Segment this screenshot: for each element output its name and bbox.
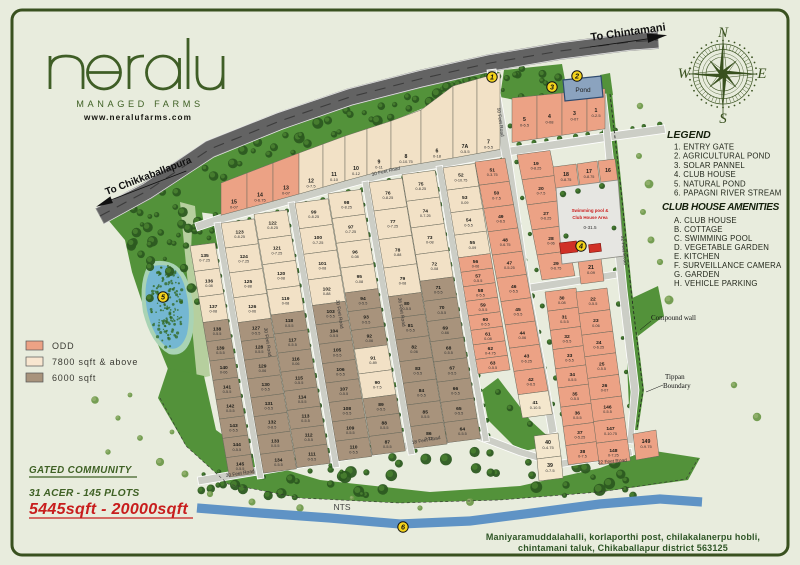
svg-text:0-5.5: 0-5.5 [421, 415, 430, 419]
svg-text:0-07: 0-07 [601, 389, 609, 393]
svg-text:0-09: 0-09 [587, 270, 596, 275]
svg-text:5445sqft - 20000sqft: 5445sqft - 20000sqft [29, 501, 188, 518]
svg-text:0-18: 0-18 [433, 154, 442, 159]
svg-text:0-5.5: 0-5.5 [359, 302, 368, 306]
svg-text:0-06: 0-06 [365, 339, 373, 343]
svg-text:0-5.5: 0-5.5 [288, 343, 297, 347]
svg-text:0-06: 0-06 [547, 242, 555, 246]
svg-text:16: 16 [605, 168, 611, 174]
svg-text:0-8.25: 0-8.25 [234, 235, 245, 239]
svg-text:F. SURVEILLANCE CAMERA: F. SURVEILLANCE CAMERA [674, 261, 782, 270]
svg-text:0-4.75: 0-4.75 [485, 352, 496, 356]
svg-text:G. GARDEN: G. GARDEN [674, 270, 720, 279]
svg-text:0-10.75: 0-10.75 [604, 432, 617, 436]
svg-text:0-08: 0-08 [426, 241, 434, 245]
svg-text:0-89: 0-89 [369, 361, 377, 365]
svg-text:0-5.5: 0-5.5 [343, 412, 352, 416]
svg-text:0-7.5: 0-7.5 [306, 184, 316, 189]
svg-text:4. CLUB HOUSE: 4. CLUB HOUSE [674, 170, 736, 179]
svg-text:0-5.5: 0-5.5 [223, 390, 232, 394]
svg-text:0-6.75: 0-6.75 [500, 243, 511, 247]
svg-text:0-8.25: 0-8.25 [341, 205, 352, 209]
svg-text:0-88: 0-88 [394, 253, 402, 257]
svg-text:0-5.5: 0-5.5 [448, 371, 457, 375]
svg-text:7800 sqft & above: 7800 sqft & above [52, 357, 138, 367]
svg-text:0-5.5: 0-5.5 [380, 426, 389, 430]
svg-text:0-4.75: 0-4.75 [542, 445, 554, 450]
svg-text:0-5.5: 0-5.5 [339, 392, 348, 396]
svg-text:0-6.25: 0-6.25 [521, 359, 532, 363]
svg-text:0-06: 0-06 [410, 350, 418, 354]
svg-text:A. CLUB HOUSE: A. CLUB HOUSE [674, 216, 737, 225]
svg-text:0-5.5: 0-5.5 [229, 429, 238, 433]
svg-text:0-08: 0-08 [484, 337, 492, 341]
svg-text:0-5.5: 0-5.5 [301, 419, 310, 423]
svg-text:0-5.5: 0-5.5 [488, 366, 497, 370]
svg-text:0-9.75: 0-9.75 [640, 444, 652, 449]
svg-text:Club House Area: Club House Area [572, 215, 608, 220]
svg-text:0-5.5: 0-5.5 [560, 320, 569, 324]
svg-text:Tippan: Tippan [665, 373, 685, 381]
svg-text:chintamani taluk, Chikaballapu: chintamani taluk, Chikaballapur district… [518, 543, 728, 553]
svg-text:0-08: 0-08 [205, 284, 213, 288]
svg-text:0-5.5: 0-5.5 [437, 311, 446, 315]
svg-text:E: E [756, 66, 766, 82]
svg-text:H. VEHICLE PARKING: H. VEHICLE PARKING [674, 279, 758, 288]
svg-text:N: N [717, 25, 729, 41]
svg-text:0-5.5: 0-5.5 [509, 289, 518, 293]
svg-text:0-07: 0-07 [282, 191, 291, 196]
svg-text:0-6.5: 0-6.5 [527, 383, 536, 387]
svg-text:0-08: 0-08 [545, 119, 554, 124]
svg-text:0-5.5: 0-5.5 [406, 328, 415, 332]
svg-text:0-5.5: 0-5.5 [377, 408, 386, 412]
svg-text:0-7.25: 0-7.25 [238, 260, 249, 264]
svg-text:6000 sqft: 6000 sqft [52, 373, 96, 383]
svg-text:0-5.5: 0-5.5 [295, 381, 304, 385]
svg-text:0-7.25: 0-7.25 [199, 259, 210, 263]
svg-text:0-5.5: 0-5.5 [308, 457, 317, 461]
svg-text:0-7.25: 0-7.25 [387, 225, 398, 229]
svg-text:5. NATURAL POND: 5. NATURAL POND [674, 179, 746, 188]
svg-text:0-5.5: 0-5.5 [484, 145, 494, 150]
svg-text:0-5.5: 0-5.5 [413, 372, 422, 376]
svg-text:0-5.5: 0-5.5 [568, 378, 577, 382]
svg-text:2: 2 [574, 72, 579, 81]
svg-text:0-7.5: 0-7.5 [373, 386, 382, 390]
svg-text:0-5.5: 0-5.5 [330, 334, 339, 338]
svg-text:0-8.5: 0-8.5 [268, 425, 277, 429]
svg-text:0-5.5: 0-5.5 [298, 400, 307, 404]
svg-text:MANAGED FARMS: MANAGED FARMS [76, 99, 203, 109]
svg-text:0-07: 0-07 [230, 205, 239, 210]
svg-text:0-5.5: 0-5.5 [349, 450, 358, 454]
svg-text:0-8.75: 0-8.75 [584, 175, 595, 179]
svg-text:0-5.5: 0-5.5 [476, 293, 485, 297]
svg-text:0-7.5: 0-7.5 [578, 455, 587, 459]
svg-text:Pond: Pond [575, 87, 591, 94]
svg-text:0-5.5: 0-5.5 [479, 308, 488, 312]
svg-text:0-5.5: 0-5.5 [232, 448, 241, 452]
svg-text:0-10.5: 0-10.5 [530, 406, 541, 410]
svg-text:0-5.5: 0-5.5 [573, 416, 582, 420]
svg-text:0-08: 0-08 [431, 267, 439, 271]
svg-text:0-5.5: 0-5.5 [261, 388, 270, 392]
svg-text:0-08: 0-08 [355, 280, 363, 284]
svg-text:0-5.5: 0-5.5 [213, 332, 222, 336]
svg-text:0-88: 0-88 [323, 292, 331, 296]
svg-text:D. VEGETABLE GARDEN: D. VEGETABLE GARDEN [674, 243, 769, 252]
svg-text:0-5.5: 0-5.5 [589, 302, 598, 306]
svg-text:0-88: 0-88 [244, 285, 252, 289]
svg-text:CLUB HOUSE AMENITIES: CLUB HOUSE AMENITIES [662, 202, 780, 213]
svg-text:31 ACER - 145 PLOTS: 31 ACER - 145 PLOTS [29, 488, 139, 499]
svg-text:B. COTTAGE: B. COTTAGE [674, 225, 723, 234]
svg-text:0-5.5: 0-5.5 [304, 438, 313, 442]
svg-text:0-5.5: 0-5.5 [271, 444, 280, 448]
svg-text:0-5.5: 0-5.5 [451, 392, 460, 396]
svg-text:0-6.75: 0-6.75 [551, 267, 562, 271]
svg-text:NTS: NTS [334, 502, 351, 512]
svg-text:1. ENTRY GATE: 1. ENTRY GATE [674, 143, 734, 152]
svg-text:0-5.5: 0-5.5 [417, 393, 426, 397]
svg-text:0-7.5: 0-7.5 [537, 192, 546, 196]
svg-text:0-5.5: 0-5.5 [362, 320, 371, 324]
svg-text:0-5.5: 0-5.5 [274, 463, 283, 467]
svg-text:Compound wall: Compound wall [651, 314, 696, 322]
svg-text:LEGEND: LEGEND [667, 129, 711, 141]
svg-text:0-5.5: 0-5.5 [326, 315, 335, 319]
svg-text:0-12: 0-12 [352, 171, 361, 176]
svg-text:0-7.25: 0-7.25 [313, 241, 324, 245]
svg-text:3: 3 [550, 83, 554, 92]
svg-text:0-5.5: 0-5.5 [458, 432, 467, 436]
svg-text:0-5.5: 0-5.5 [455, 412, 464, 416]
svg-text:0-5.25: 0-5.25 [504, 266, 515, 270]
svg-text:Maniyaramuddalahalli, korlapor: Maniyaramuddalahalli, korlaporthi post, … [486, 532, 760, 542]
svg-text:0-8.25: 0-8.25 [267, 226, 278, 230]
svg-text:0-06: 0-06 [472, 264, 480, 268]
svg-text:0-06: 0-06 [518, 336, 526, 340]
svg-text:0-10: 0-10 [330, 177, 339, 182]
svg-text:0-5.5: 0-5.5 [464, 223, 473, 227]
svg-text:0-5.25: 0-5.25 [575, 435, 586, 439]
svg-text:0-08: 0-08 [399, 282, 407, 286]
svg-text:0-8.25: 0-8.25 [415, 187, 426, 191]
svg-text:2. AGRICULTURAL POND: 2. AGRICULTURAL POND [674, 152, 770, 161]
svg-text:0-66: 0-66 [441, 331, 449, 335]
svg-text:3. SOLAR PANNEL: 3. SOLAR PANNEL [674, 161, 745, 170]
svg-text:0-5.5: 0-5.5 [252, 331, 261, 335]
svg-text:0-08: 0-08 [209, 310, 217, 314]
svg-text:0-08: 0-08 [277, 277, 285, 281]
svg-text:4: 4 [578, 242, 583, 251]
svg-text:0-5.5: 0-5.5 [444, 351, 453, 355]
svg-text:0-08: 0-08 [319, 266, 327, 270]
svg-text:Swimming pool &: Swimming pool & [572, 208, 610, 213]
svg-text:GATED COMMUNITY: GATED COMMUNITY [29, 465, 133, 476]
svg-text:0-6.75: 0-6.75 [254, 198, 266, 203]
svg-text:W: W [678, 66, 692, 82]
svg-text:0-5.5: 0-5.5 [597, 367, 606, 371]
svg-text:0-5.5: 0-5.5 [603, 410, 612, 414]
svg-text:0-5.5: 0-5.5 [474, 279, 483, 283]
svg-text:0-5.5: 0-5.5 [514, 313, 523, 317]
svg-text:0-6.25: 0-6.25 [593, 345, 604, 349]
svg-text:0-5.5: 0-5.5 [434, 291, 443, 295]
svg-text:6. PAPAGNI RIVER STREAM: 6. PAPAGNI RIVER STREAM [674, 189, 781, 198]
svg-text:0-7.5: 0-7.5 [492, 196, 501, 200]
svg-text:E. KITCHEN: E. KITCHEN [674, 252, 720, 261]
svg-text:0-6.5: 0-6.5 [496, 220, 505, 224]
svg-text:0-09: 0-09 [461, 201, 469, 205]
svg-text:0-5.5: 0-5.5 [264, 407, 273, 411]
svg-text:0-8.75: 0-8.75 [561, 178, 572, 182]
svg-text:0-10.75: 0-10.75 [454, 178, 467, 182]
svg-text:0-5.5: 0-5.5 [383, 445, 392, 449]
svg-text:0-8.25: 0-8.25 [308, 215, 319, 219]
svg-text:0-06: 0-06 [220, 371, 228, 375]
svg-text:0-08: 0-08 [558, 301, 566, 305]
svg-text:0-5.5: 0-5.5 [336, 373, 345, 377]
svg-text:0-5.5: 0-5.5 [460, 149, 470, 154]
svg-text:0-5.5: 0-5.5 [481, 323, 490, 327]
svg-text:0-06: 0-06 [592, 324, 600, 328]
svg-text:0-5.5: 0-5.5 [285, 324, 294, 328]
svg-text:0-31.5: 0-31.5 [583, 225, 596, 230]
svg-text:0-5.5: 0-5.5 [333, 353, 342, 357]
svg-text:0-06: 0-06 [259, 369, 267, 373]
svg-text:0-7.25: 0-7.25 [272, 251, 283, 255]
svg-text:0-5.5: 0-5.5 [570, 397, 579, 401]
svg-text:S: S [719, 111, 727, 127]
svg-text:0-06: 0-06 [248, 309, 256, 313]
svg-text:0-5.5: 0-5.5 [563, 339, 572, 343]
svg-text:ODD: ODD [52, 341, 74, 351]
svg-text:0-6.25: 0-6.25 [541, 217, 552, 221]
svg-text:0-5.5: 0-5.5 [226, 409, 235, 413]
svg-text:0-08: 0-08 [351, 255, 359, 259]
svg-text:0-3.75: 0-3.75 [487, 173, 498, 177]
svg-text:0-08: 0-08 [282, 302, 290, 306]
svg-text:Boundary: Boundary [663, 382, 691, 390]
svg-text:1: 1 [490, 73, 494, 82]
svg-text:0-8.25: 0-8.25 [531, 167, 542, 171]
svg-text:0-5.5: 0-5.5 [565, 359, 574, 363]
svg-text:www.neralufarms.com: www.neralufarms.com [83, 113, 192, 122]
svg-text:0-8.25: 0-8.25 [383, 196, 394, 200]
svg-text:0-5.5: 0-5.5 [255, 350, 264, 354]
svg-text:C. SWIMMING POOL: C. SWIMMING POOL [674, 234, 753, 243]
svg-text:0-09: 0-09 [469, 246, 477, 250]
svg-text:0-07: 0-07 [570, 116, 579, 121]
svg-text:0-06: 0-06 [292, 362, 300, 366]
svg-text:0-11: 0-11 [375, 165, 383, 170]
svg-text:0-6.5: 0-6.5 [520, 122, 530, 127]
svg-text:0-7.25: 0-7.25 [420, 214, 431, 218]
svg-text:0-2.5: 0-2.5 [591, 113, 601, 118]
svg-text:0-7.5: 0-7.5 [545, 468, 555, 473]
svg-text:0-7.25: 0-7.25 [345, 230, 356, 234]
svg-text:0-5.5: 0-5.5 [216, 351, 225, 355]
svg-text:0-7.25: 0-7.25 [608, 453, 619, 457]
svg-text:0-5.5: 0-5.5 [346, 431, 355, 435]
svg-text:0-10.75: 0-10.75 [399, 159, 413, 164]
